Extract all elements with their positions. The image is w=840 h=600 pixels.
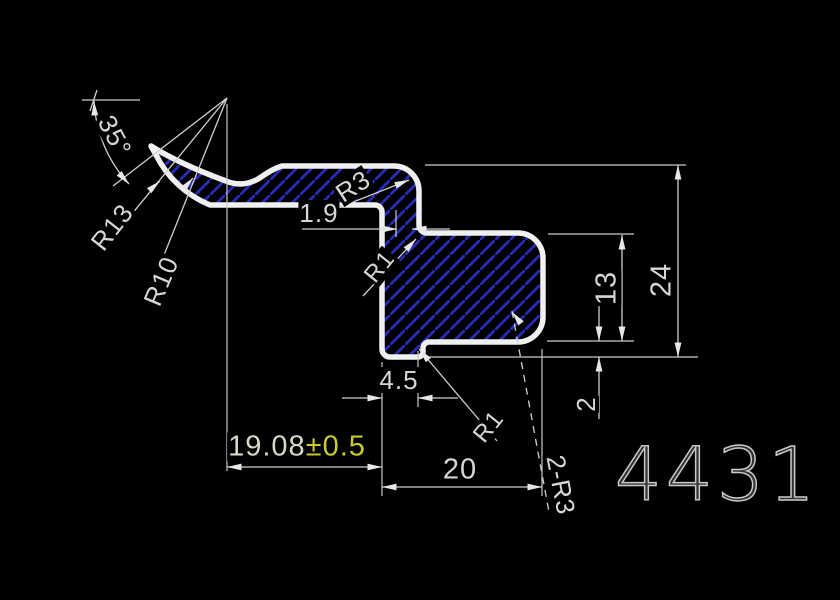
dim-1-9-label: 1.9	[298, 200, 339, 226]
dim-4-5-label: 4.5	[378, 367, 419, 393]
part-number: 4431	[615, 438, 819, 512]
dim-20-label: 20	[442, 456, 478, 485]
leader-r13-arrow	[151, 181, 160, 189]
dim-19-08-nominal: 19.08	[228, 431, 306, 463]
cad-drawing-canvas: 35° R13 R10 R3 1.9 R1 13 24 4.5 2 19.08±…	[0, 0, 840, 600]
dim-19-08-tolerance: ±0.5	[306, 431, 366, 463]
dim-19-08-label: 19.08±0.5	[227, 433, 367, 462]
dim-13-label: 13	[593, 270, 622, 306]
dim-2-label: 2	[573, 395, 599, 412]
dim-24-label: 24	[648, 262, 677, 298]
